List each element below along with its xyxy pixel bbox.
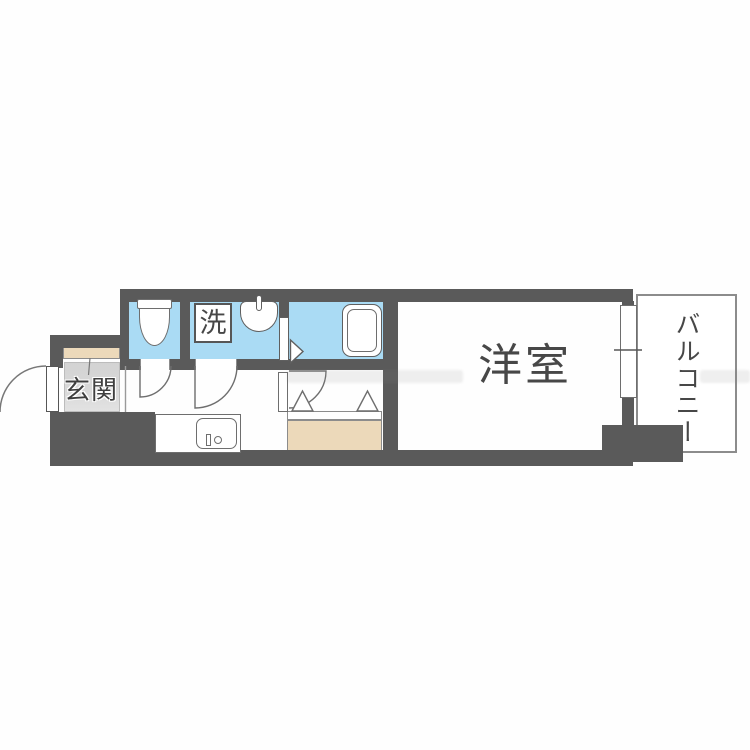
closet-floor (287, 420, 382, 452)
floor-plan-canvas: 洗 玄関 洋室 バルコニー (0, 0, 750, 750)
wall-entrance-left (50, 335, 63, 368)
shoe-cabinet (63, 347, 120, 359)
watermark (287, 370, 463, 383)
washroom-door-arc (195, 366, 237, 408)
entrance-label: 玄関 (60, 375, 122, 405)
toilet-tank-icon (137, 299, 172, 309)
closet-door-track (287, 411, 382, 420)
wall-top (120, 289, 633, 302)
kitchen-sink-icon (196, 418, 237, 449)
wall-entrance-bottom-block (50, 412, 155, 457)
wall-toilet-left (120, 289, 129, 370)
closet-bifold-triangle-right (357, 391, 378, 411)
toilet-door-arc (140, 366, 171, 397)
bathroom-door-leaf (279, 317, 289, 361)
laundry-label: 洗 (196, 305, 230, 341)
toilet-door-threshold (140, 359, 170, 370)
entrance-door-arc (0, 366, 46, 412)
entrance-door-leaf (46, 366, 59, 412)
western-room-label: 洋室 (430, 343, 620, 391)
kitchen-faucet-knob-icon (214, 436, 222, 444)
kitchen-faucet-icon (206, 434, 211, 446)
bathtub-inner-rim (347, 309, 377, 352)
washroom-door-threshold (195, 359, 237, 370)
closet-bifold-triangle-left (292, 391, 313, 411)
wash-basin-faucet-icon (256, 295, 262, 311)
washing-machine-pan: 洗 (194, 303, 232, 343)
window-sliding (620, 305, 637, 398)
wall-washroom-bathroom (279, 289, 289, 319)
watermark (700, 370, 750, 383)
wall-toilet-washroom (180, 289, 190, 370)
